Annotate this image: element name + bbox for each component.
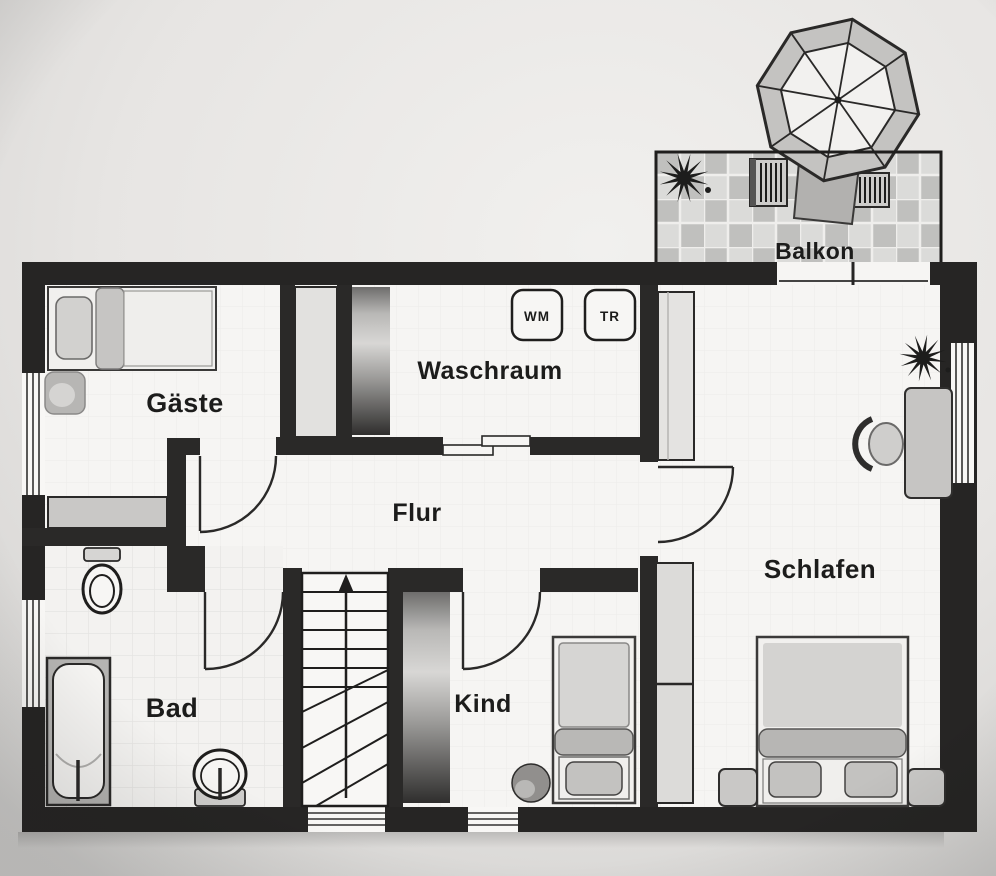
floor-plan-canvas: Balkon — [0, 0, 996, 876]
photo-vignette — [0, 0, 996, 876]
floor-plan: Balkon — [0, 0, 996, 876]
